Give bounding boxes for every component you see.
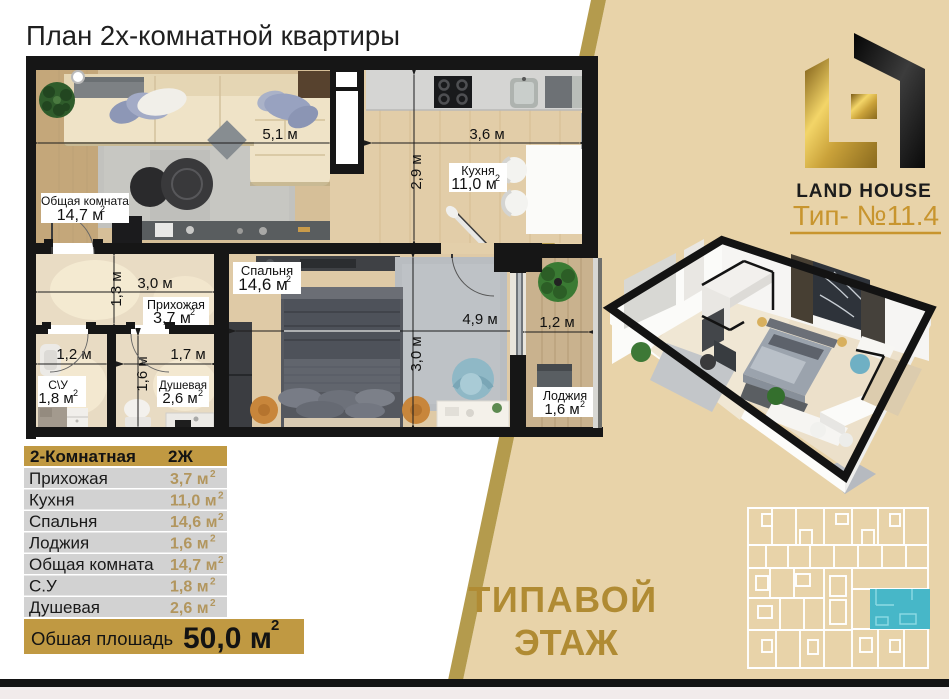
svg-text:1,8 м: 1,8 м: [170, 579, 209, 596]
svg-text:Общая комната: Общая комната: [41, 194, 129, 208]
svg-text:План 2х-комнатной квартиры: План 2х-комнатной квартиры: [26, 20, 400, 51]
svg-text:2: 2: [210, 534, 216, 545]
svg-text:С.У: С.У: [29, 577, 57, 596]
svg-text:14,7 м: 14,7 м: [57, 207, 104, 224]
svg-text:3,0 м: 3,0 м: [408, 336, 425, 371]
svg-text:1,2 м: 1,2 м: [539, 314, 574, 331]
svg-text:2: 2: [271, 617, 279, 634]
svg-text:Тип- №11.4: Тип- №11.4: [793, 200, 939, 231]
svg-text:2: 2: [286, 274, 291, 284]
svg-text:14,6 м: 14,6 м: [238, 275, 288, 294]
svg-text:2: 2: [210, 469, 216, 480]
svg-text:2Ж: 2Ж: [168, 447, 193, 466]
svg-text:2: 2: [73, 388, 78, 398]
svg-text:Кухня: Кухня: [29, 491, 75, 510]
svg-text:Спальня: Спальня: [29, 512, 97, 531]
svg-text:14,6 м: 14,6 м: [170, 514, 217, 531]
svg-text:2: 2: [210, 577, 216, 588]
svg-text:11,0 м: 11,0 м: [451, 176, 496, 193]
svg-text:2: 2: [100, 204, 105, 214]
svg-text:Душевая: Душевая: [29, 598, 100, 617]
svg-text:2: 2: [218, 491, 224, 502]
svg-text:Общая комната: Общая комната: [29, 555, 154, 574]
svg-text:14,7 м: 14,7 м: [170, 557, 217, 574]
svg-text:1,6 м: 1,6 м: [544, 401, 579, 418]
svg-text:3,0 м: 3,0 м: [137, 275, 172, 292]
svg-text:Лоджия: Лоджия: [29, 534, 89, 553]
svg-text:2,9 м: 2,9 м: [408, 154, 425, 189]
svg-text:1,8 м: 1,8 м: [38, 390, 73, 407]
svg-text:50,0 м: 50,0 м: [183, 622, 272, 655]
svg-text:2: 2: [495, 173, 500, 183]
svg-text:2: 2: [580, 399, 585, 409]
svg-text:1,2 м: 1,2 м: [56, 346, 91, 363]
svg-text:1,7 м: 1,7 м: [170, 346, 205, 363]
svg-text:1,3 м: 1,3 м: [108, 271, 125, 306]
svg-text:11,0 м: 11,0 м: [170, 493, 217, 510]
svg-text:LAND HOUSE: LAND HOUSE: [796, 181, 932, 202]
svg-text:2,6 м: 2,6 м: [162, 390, 197, 407]
svg-text:2: 2: [218, 512, 224, 523]
svg-text:2,6 м: 2,6 м: [170, 600, 209, 617]
svg-text:2: 2: [198, 388, 203, 398]
svg-text:2: 2: [218, 555, 224, 566]
svg-text:2: 2: [210, 598, 216, 609]
svg-text:5,1 м: 5,1 м: [262, 126, 297, 143]
svg-text:1,6 м: 1,6 м: [170, 536, 209, 553]
svg-text:4,9 м: 4,9 м: [462, 311, 497, 328]
svg-text:2-Комнатная: 2-Комнатная: [30, 447, 136, 466]
svg-text:Обшая плошадь: Обшая плошадь: [31, 628, 173, 649]
svg-text:2: 2: [190, 307, 195, 317]
svg-text:ТИПАВОЙ: ТИПАВОЙ: [468, 578, 657, 620]
svg-text:3,7 м: 3,7 м: [170, 471, 209, 488]
svg-text:Прихожая: Прихожая: [29, 469, 108, 488]
svg-text:ЭТАЖ: ЭТАЖ: [514, 622, 618, 663]
svg-text:3,6 м: 3,6 м: [469, 126, 504, 143]
